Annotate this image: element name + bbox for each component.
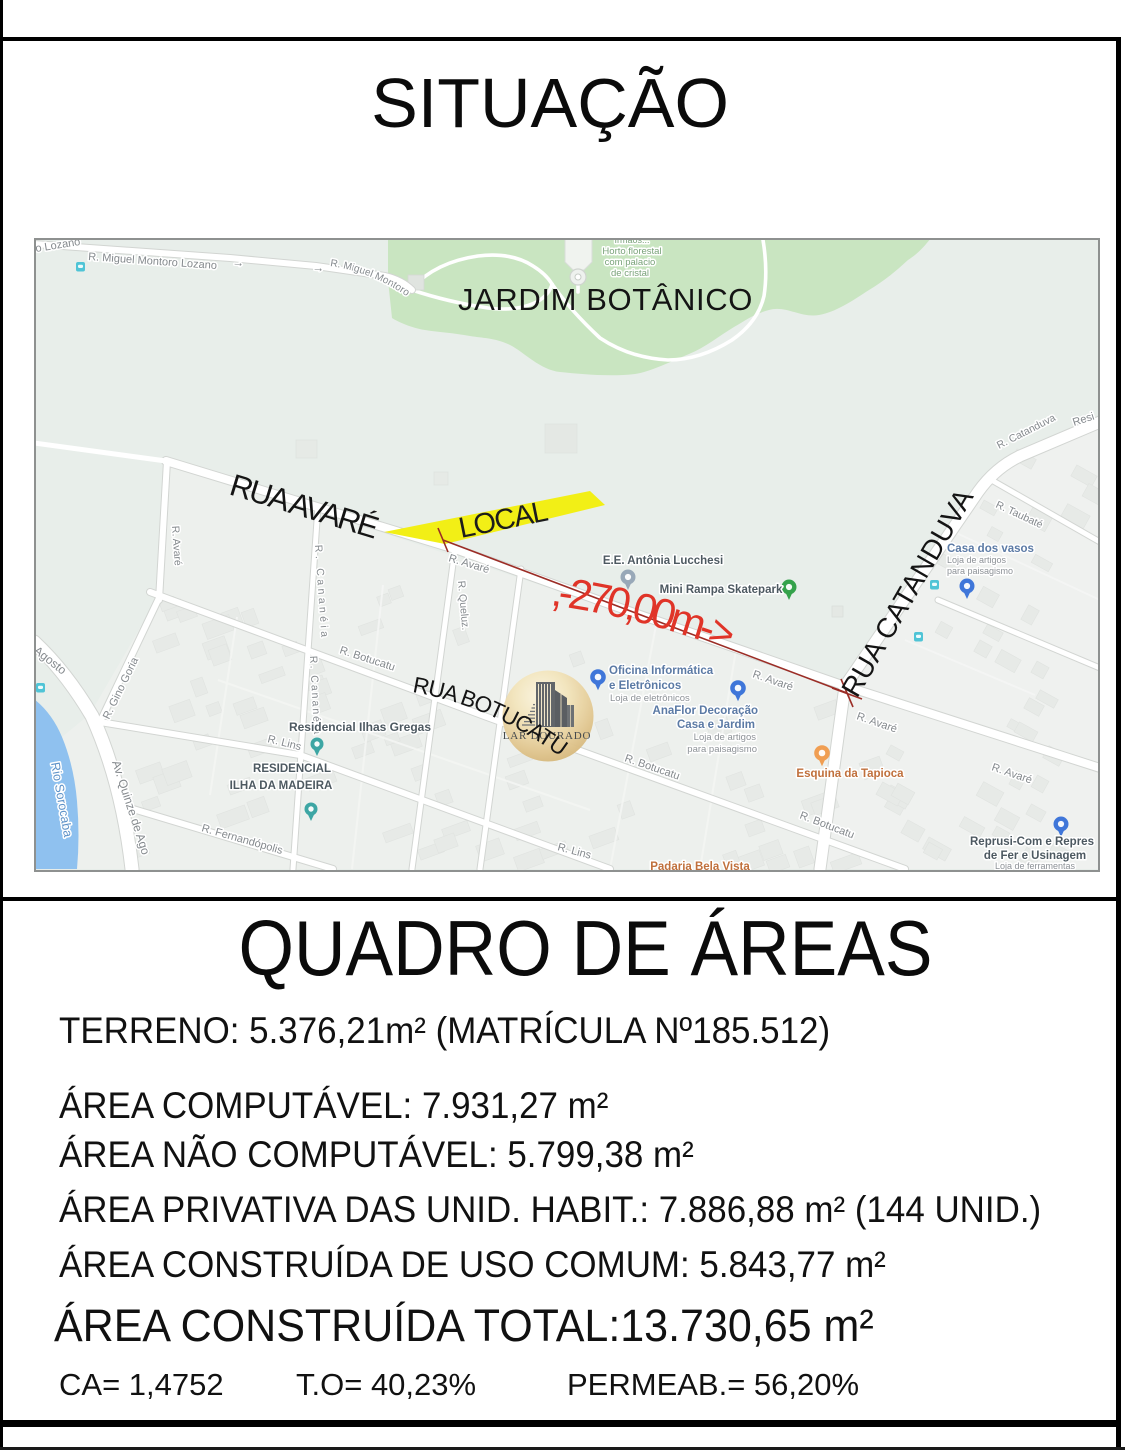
svg-text:Loja de ferramentas: Loja de ferramentas [995,861,1076,870]
svg-text:Loja de eletrônicos: Loja de eletrônicos [610,693,690,704]
svg-text:Padaria Bela Vista: Padaria Bela Vista [650,861,750,870]
svg-text:e Eletrônicos: e Eletrônicos [609,680,681,692]
svg-text:Casa e Jardim: Casa e Jardim [677,719,755,731]
svg-text:Loja de artigos: Loja de artigos [947,555,1007,565]
svg-text:Residencial Ilhas Gregas: Residencial Ilhas Gregas [289,720,431,734]
svg-text:E.E. Antônia Lucchesi: E.E. Antônia Lucchesi [603,555,723,567]
svg-text:ILHA DA MADEIRA: ILHA DA MADEIRA [230,780,333,792]
svg-text:Horto florestal: Horto florestal [602,246,661,257]
svg-text:Casa dos vasos: Casa dos vasos [947,543,1034,555]
svg-text:para paisagismo: para paisagismo [947,566,1013,576]
svg-text:Irmãos...: Irmãos... [614,240,649,245]
svg-text:Loja de artigos: Loja de artigos [694,732,757,743]
svg-text:Mini Rampa Skatepark: Mini Rampa Skatepark [660,584,783,596]
svg-text:→: → [232,255,245,270]
svg-text:Reprusi-Com e Repres: Reprusi-Com e Repres [970,836,1094,848]
svg-text:Esquina da Tapioca: Esquina da Tapioca [796,768,904,780]
svg-text:com palacio: com palacio [605,257,656,268]
svg-text:→: → [312,260,325,275]
svg-text:RESIDENCIAL: RESIDENCIAL [253,763,331,775]
svg-text:AnaFlor Decoração: AnaFlor Decoração [653,705,758,717]
svg-text:JARDIM BOTÂNICO: JARDIM BOTÂNICO [458,282,753,317]
svg-text:Oficina Informática: Oficina Informática [609,665,714,677]
svg-text:para paisagismo: para paisagismo [687,744,757,755]
svg-text:de cristal: de cristal [611,268,649,279]
